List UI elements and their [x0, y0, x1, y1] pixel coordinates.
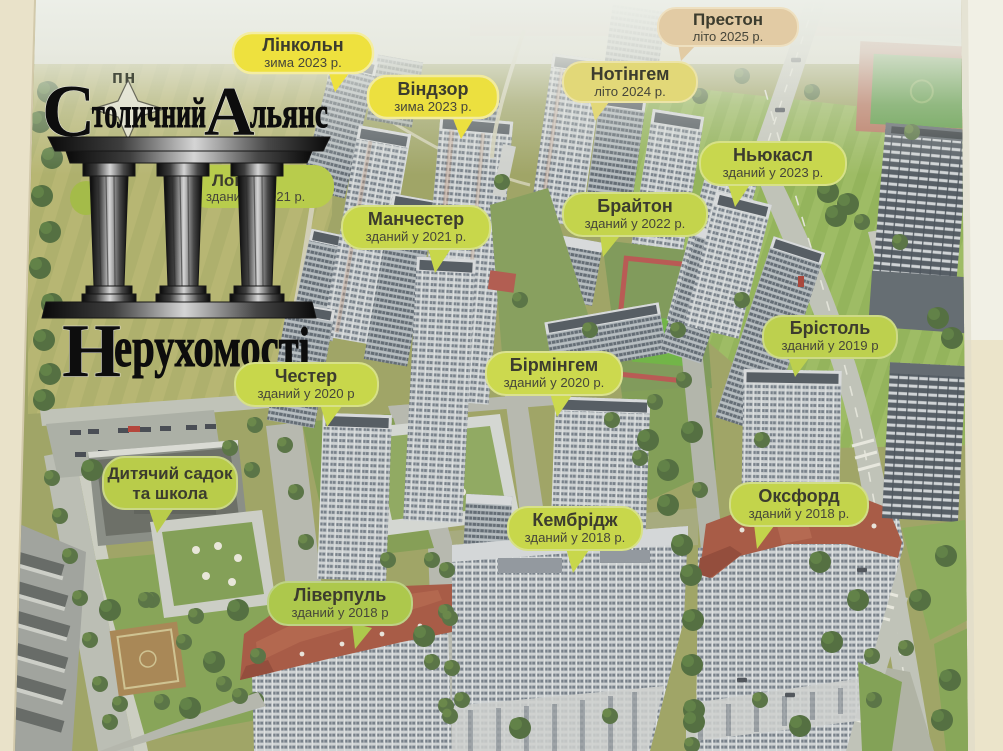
svg-text:толичний: толичний	[92, 91, 206, 137]
svg-text:зима 2023 р.: зима 2023 р.	[394, 99, 471, 114]
svg-text:зданий у 2022 р.: зданий у 2022 р.	[585, 216, 686, 231]
svg-text:Нотінгем: Нотінгем	[591, 64, 670, 84]
svg-text:Ліверпуль: Ліверпуль	[294, 585, 387, 605]
svg-text:Престон: Престон	[693, 10, 763, 29]
svg-text:зима 2023 р.: зима 2023 р.	[264, 55, 341, 70]
svg-text:зданий у 2023 р.: зданий у 2023 р.	[723, 165, 824, 180]
svg-text:Дитячий садок: Дитячий садок	[107, 464, 233, 483]
svg-text:Н: Н	[62, 309, 121, 393]
svg-text:зданий у 2018 р.: зданий у 2018 р.	[749, 506, 850, 521]
svg-text:зданий у 2021 р.: зданий у 2021 р.	[366, 229, 467, 244]
svg-text:зданий у 2020 р: зданий у 2020 р	[257, 386, 354, 401]
svg-text:Кембрідж: Кембрідж	[532, 510, 617, 530]
svg-text:Віндзор: Віндзор	[397, 79, 468, 99]
svg-text:зданий у 2020 р.: зданий у 2020 р.	[504, 375, 605, 390]
svg-text:Честер: Честер	[275, 366, 337, 386]
svg-text:Лінкольн: Лінкольн	[262, 35, 343, 55]
svg-text:зданий у 2018 р.: зданий у 2018 р.	[525, 530, 626, 545]
svg-text:льянс: льянс	[250, 91, 328, 137]
svg-text:Ньюкасл: Ньюкасл	[733, 145, 813, 165]
svg-text:зданий у 2019 р: зданий у 2019 р	[781, 338, 878, 353]
svg-text:зданий у 2018 р: зданий у 2018 р	[291, 605, 388, 620]
svg-text:та школа: та школа	[132, 484, 208, 503]
svg-text:Манчестер: Манчестер	[368, 209, 464, 229]
svg-text:Оксфорд: Оксфорд	[758, 486, 840, 506]
svg-text:пн: пн	[112, 67, 137, 87]
svg-text:літо 2024 р.: літо 2024 р.	[594, 84, 666, 99]
svg-text:Брістоль: Брістоль	[790, 318, 871, 338]
svg-text:Бірмінгем: Бірмінгем	[510, 355, 598, 375]
svg-text:Брайтон: Брайтон	[597, 196, 672, 216]
svg-text:літо 2025 р.: літо 2025 р.	[693, 29, 764, 44]
